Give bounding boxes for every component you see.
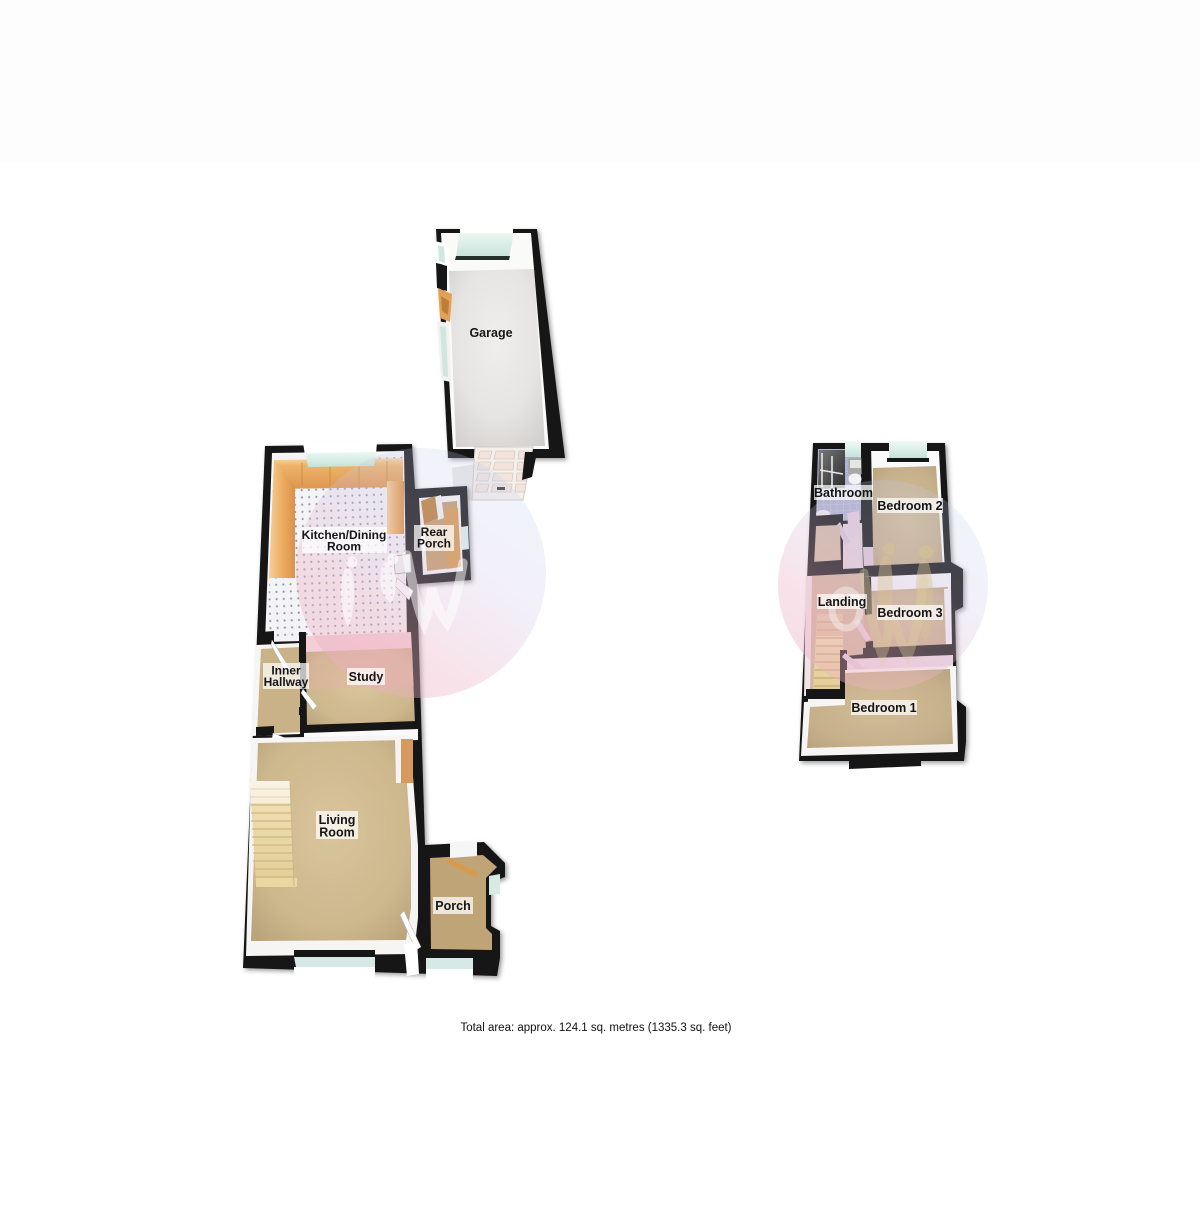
svg-text:Total area: approx. 124.1 sq.: Total area: approx. 124.1 sq. metres (13… — [460, 1022, 731, 1034]
svg-text:Room: Room — [319, 826, 354, 840]
svg-text:Porch: Porch — [417, 537, 451, 551]
svg-text:Landing: Landing — [818, 595, 867, 609]
svg-text:Room: Room — [327, 540, 361, 554]
svg-text:Bedroom 1: Bedroom 1 — [851, 701, 916, 715]
svg-text:Porch: Porch — [435, 899, 470, 913]
svg-text:Garage: Garage — [469, 326, 512, 340]
svg-text:Study: Study — [349, 670, 384, 684]
svg-text:Hallway: Hallway — [264, 675, 309, 689]
svg-text:Bedroom 3: Bedroom 3 — [877, 606, 942, 620]
svg-text:Bedroom 2: Bedroom 2 — [877, 499, 942, 513]
svg-text:Bathroom: Bathroom — [814, 486, 873, 500]
